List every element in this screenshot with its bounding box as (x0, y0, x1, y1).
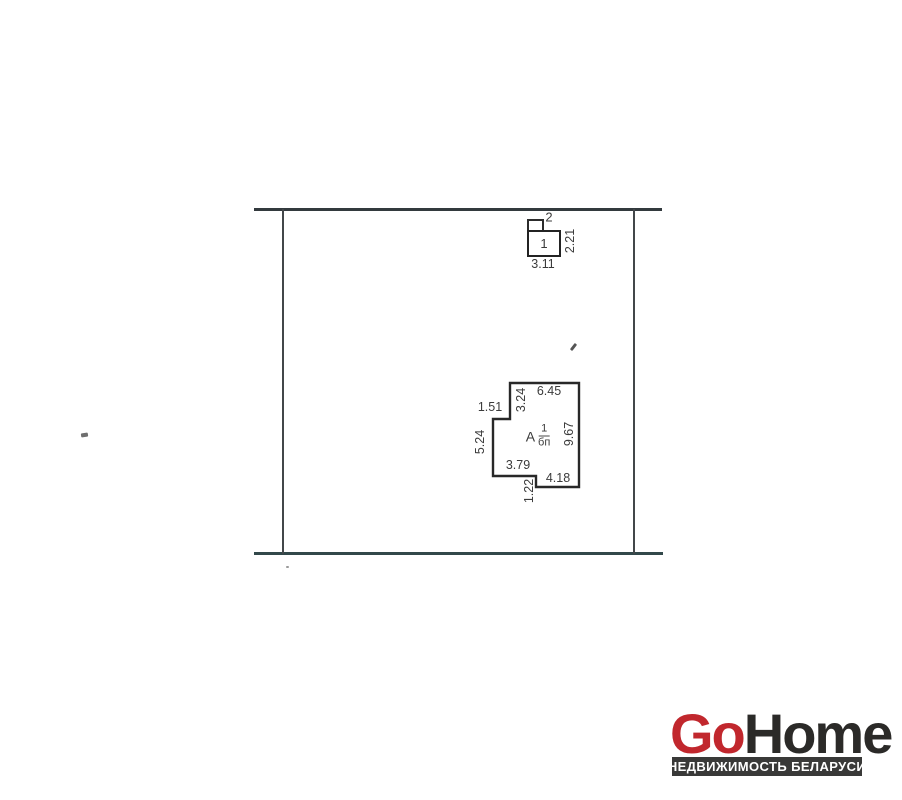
dim-house-top: 6.45 (537, 385, 561, 398)
plot-boundary-right-line (633, 209, 635, 554)
dim-outbuilding-height: 2.21 (564, 229, 577, 253)
outbuilding-main-label: 1 (540, 237, 547, 250)
gohome-tagline-banner: НЕДВИЖИМОСТЬ БЕЛАРУСИ (672, 757, 862, 776)
dim-house-left-vertical: 5.24 (474, 430, 487, 454)
gohome-brand-home: Home (744, 702, 892, 765)
dim-house-bottom-step-vertical: 1.22 (523, 479, 536, 503)
scan-speck (286, 566, 289, 568)
outbuilding-annex-label: 2 (545, 211, 552, 224)
plot-boundary-bottom-line (254, 552, 663, 555)
gohome-logo: GoHome (670, 706, 891, 762)
house-storeys: 1 (539, 424, 549, 437)
dim-house-bottom-right: 4.18 (546, 472, 570, 485)
gohome-brand-text: GoHome (670, 706, 891, 762)
house-label: А 1 бп (526, 424, 551, 449)
plot-boundary-left-line (282, 209, 284, 554)
house-letter: А (526, 429, 535, 443)
dim-house-bottom-left: 3.79 (506, 459, 530, 472)
scan-speck (570, 343, 577, 351)
scan-speck (81, 433, 88, 438)
plot-boundary-top-line (254, 208, 662, 211)
house-storeys-material-fraction: 1 бп (538, 424, 550, 449)
dim-house-inner-top-vertical: 3.24 (515, 388, 528, 412)
house-material: бп (538, 437, 550, 449)
gohome-brand-go: Go (670, 702, 744, 765)
dim-outbuilding-width: 3.11 (531, 258, 554, 271)
scanned-plot-plan-page: 1 2 3.11 2.21 А 1 бп 6.45 3.24 1.51 5.24… (0, 0, 902, 800)
dim-house-right-vertical: 9.67 (563, 422, 576, 446)
outbuilding-main-outline: 1 (527, 230, 561, 257)
dim-house-notch-horizontal: 1.51 (478, 401, 502, 414)
